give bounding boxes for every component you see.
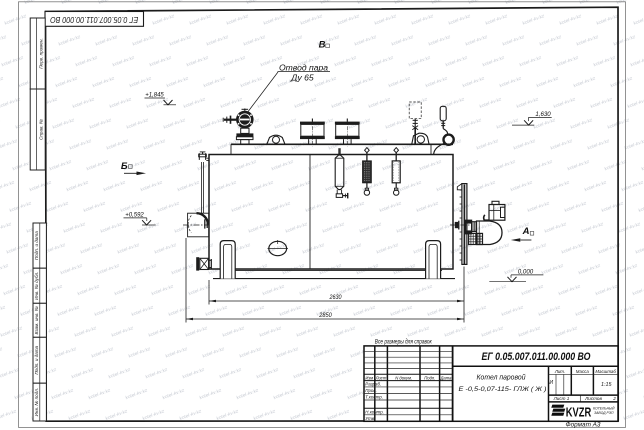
svg-text:KVZR: KVZR [566,405,592,419]
svg-text:Лист: Лист [375,375,387,380]
svg-text:Подп. и дата: Подп. и дата [34,345,39,374]
svg-text:Инв. № подл.: Инв. № подл. [34,388,39,417]
svg-text:Ду 65: Ду 65 [290,73,314,83]
svg-text:Б: Б [121,161,128,172]
svg-text:КОТЕЛЬНЫЙ: КОТЕЛЬНЫЙ [593,407,615,411]
svg-text:Утв.: Утв. [365,416,375,421]
svg-text:Взам. инв. №: Взам. инв. № [34,306,39,334]
svg-text:Все размеры для справок: Все размеры для справок [375,338,433,345]
svg-text:ЗАВОД РЭП: ЗАВОД РЭП [594,411,614,415]
svg-text:ЕГ 0.05.007.011.00.000 ВО: ЕГ 0.05.007.011.00.000 ВО [50,15,138,24]
svg-text:Перв. примен.: Перв. примен. [39,38,44,69]
svg-text:Формат А3: Формат А3 [566,421,601,428]
svg-text:А: А [522,226,530,237]
svg-text:2: 2 [612,396,616,401]
svg-text:Изм: Изм [365,375,373,380]
svg-text:Инв. № дубл.: Инв. № дубл. [34,272,39,300]
svg-text:0,000: 0,000 [518,268,534,275]
svg-text:1:15: 1:15 [601,382,612,388]
svg-text:1,630: 1,630 [535,111,551,118]
svg-text:Листов: Листов [584,396,602,401]
svg-text:Подп.: Подп. [424,375,435,380]
svg-text:Т.контр.: Т.контр. [365,395,383,400]
svg-text:В: В [319,40,326,51]
svg-text:Отвод пара: Отвод пара [279,62,328,72]
svg-text:Масштаб: Масштаб [595,369,616,374]
svg-text:Дата: Дата [439,375,452,380]
svg-text:N докум.: N докум. [395,375,412,380]
svg-text:Лист 1: Лист 1 [553,396,570,401]
svg-text:ЕГ 0.05.007.011.00.000 ВО: ЕГ 0.05.007.011.00.000 ВО [482,351,591,363]
svg-text:Масса: Масса [576,369,590,374]
svg-text:Пров.: Пров. [365,388,377,393]
svg-text:Подп. и дата: Подп. и дата [34,231,39,260]
svg-text:Лит.: Лит. [554,369,565,374]
svg-text:Справ. №: Справ. № [39,119,44,140]
svg-text:+1,845: +1,845 [145,92,164,99]
svg-text:Котел паровой: Котел паровой [477,373,527,382]
svg-text:И: И [549,380,553,386]
svg-text:2850: 2850 [318,312,332,319]
svg-text:Е -0,5-0,07-115- ГЛЖ ( Ж ): Е -0,5-0,07-115- ГЛЖ ( Ж ) [459,386,547,393]
svg-text:Н.контр.: Н.контр. [365,410,384,415]
svg-text:2630: 2630 [329,294,342,301]
svg-text:Разраб.: Разраб. [365,382,381,387]
